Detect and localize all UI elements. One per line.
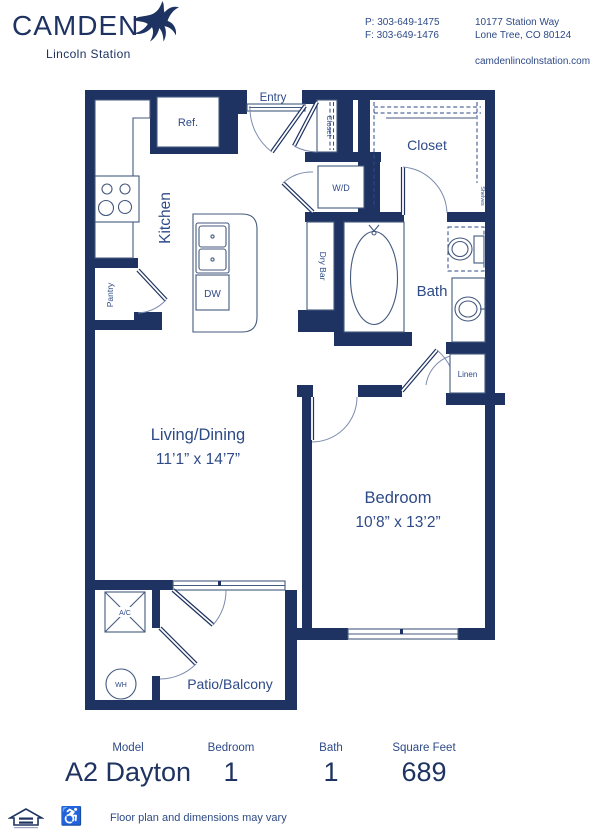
bath-fixtures <box>307 222 485 393</box>
wd-label: W/D <box>332 183 350 193</box>
toilet-tank <box>474 236 484 263</box>
ref-label: Ref. <box>178 117 198 129</box>
phone-line: P: 303-649-1475 <box>365 16 440 29</box>
floorplan-page: CAMDEN Lincoln Station P: 303-649-1475 F… <box>0 0 600 831</box>
address-line-2: Lone Tree, CO 80124 <box>475 29 571 42</box>
website-link[interactable]: camdenlincolnstation.com <box>475 56 590 67</box>
pantry-label: Pantry <box>105 282 115 307</box>
vanity <box>452 278 485 342</box>
living-dims: 11’1” x 14’7” <box>156 451 240 468</box>
brand-subtitle: Lincoln Station <box>46 47 131 61</box>
address-line-1: 10177 Station Way <box>475 16 571 29</box>
summary-bedroom: Bedroom 1 <box>176 742 286 788</box>
kitchen-label: Kitchen <box>157 192 174 244</box>
summary-square-feet: Square Feet 689 <box>349 742 499 788</box>
pantry-door <box>138 270 166 313</box>
stove <box>95 176 139 222</box>
equal-housing-icon <box>8 808 44 830</box>
sink <box>196 223 229 273</box>
disclaimer-text: Floor plan and dimensions may vary <box>110 812 287 824</box>
bathtub-deck <box>344 222 404 332</box>
floorplan-drawing: Entry Ref. Kitchen DW Pantry Closet W/D … <box>80 88 505 713</box>
entry-label: Entry <box>260 92 287 104</box>
dry-bar-label: Dry Bar <box>318 252 328 281</box>
closet-label: Closet <box>407 137 447 153</box>
contact-address-block: 10177 Station Way Lone Tree, CO 80124 <box>475 16 571 42</box>
accessibility-icon: ♿ <box>60 806 82 827</box>
dw-label: DW <box>204 289 221 300</box>
wh-label: WH <box>115 682 127 689</box>
bedroom-dims: 10’8” x 13’2” <box>355 514 440 531</box>
ac-label: A/C <box>119 610 131 617</box>
linen-label: Linen <box>458 370 478 379</box>
fax-line: F: 303-649-1476 <box>365 29 440 42</box>
bedroom-closet <box>374 102 481 215</box>
bedroom-label: Bedroom <box>365 489 432 507</box>
hummingbird-logo-icon <box>127 0 179 48</box>
contact-phone-block: P: 303-649-1475 F: 303-649-1476 <box>365 16 440 42</box>
patio-label: Patio/Balcony <box>187 676 273 692</box>
walls <box>85 90 505 710</box>
entry-closet-label: Closet <box>325 115 334 137</box>
brand-logo-text: CAMDEN <box>12 10 139 42</box>
bath-label: Bath <box>417 283 448 300</box>
shelves-label: Shelves <box>479 186 485 206</box>
living-label: Living/Dining <box>151 426 245 444</box>
